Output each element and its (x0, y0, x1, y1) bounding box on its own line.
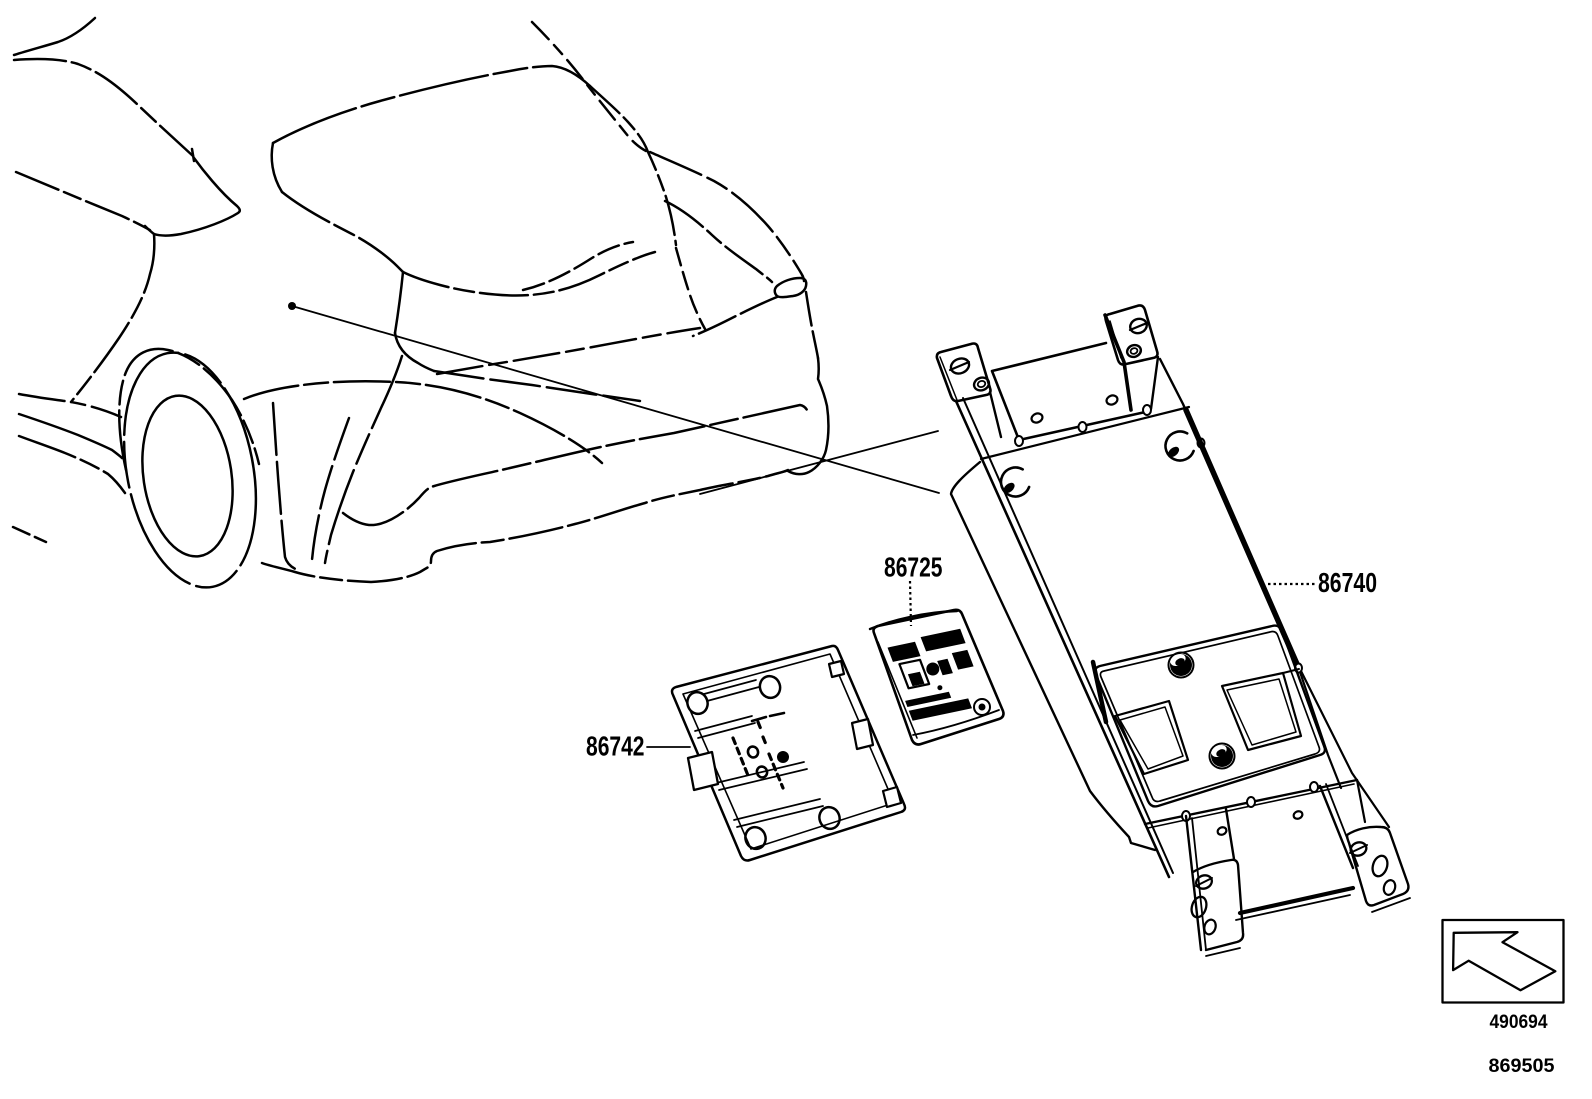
svg-text:490694: 490694 (1490, 1012, 1548, 1033)
svg-text:86742: 86742 (586, 731, 645, 762)
svg-text:869505: 869505 (1489, 1056, 1555, 1077)
svg-text:86725: 86725 (884, 552, 943, 583)
svg-text:86740: 86740 (1318, 567, 1377, 598)
